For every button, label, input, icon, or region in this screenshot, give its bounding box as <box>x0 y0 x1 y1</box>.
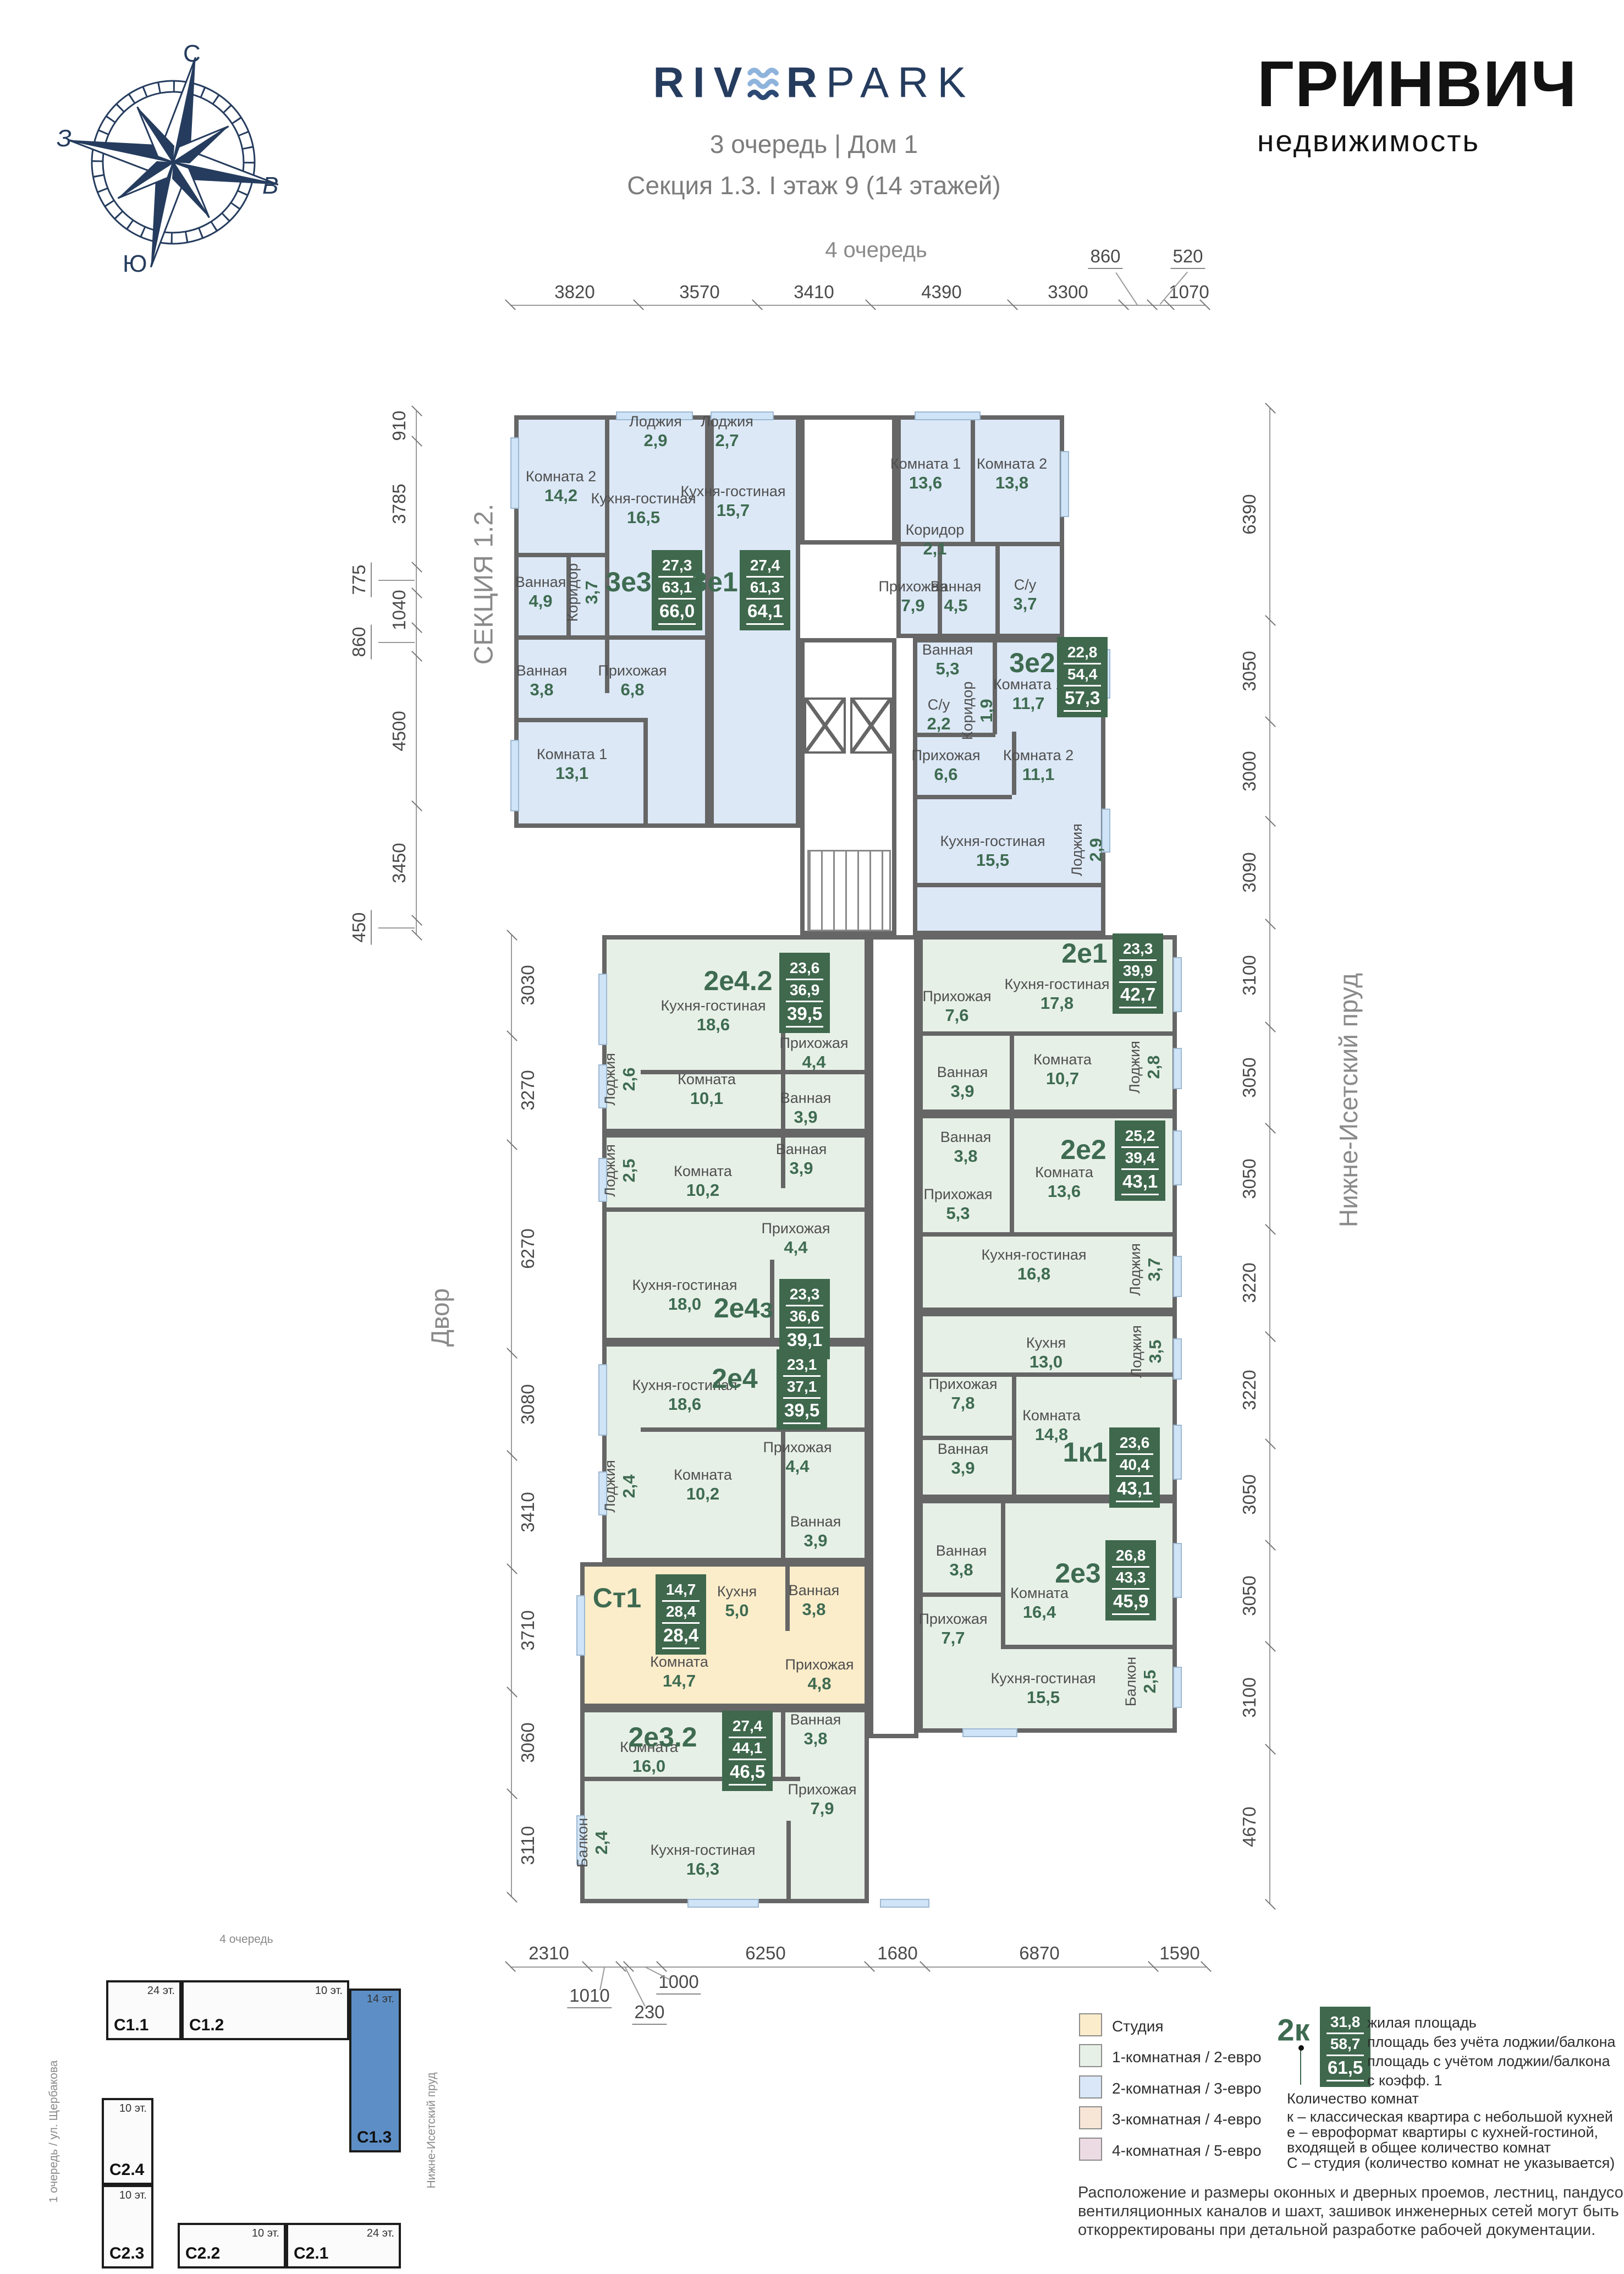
room-label: Прихожая6,8 <box>598 662 667 700</box>
room-area-value: 2,5 <box>1139 1657 1160 1707</box>
legend-label: 3-комнатная / 4-евро <box>1112 2111 1262 2128</box>
window <box>1173 1130 1182 1185</box>
legend-label: 1-комнатная / 2-евро <box>1112 2048 1262 2066</box>
badge-area-value: 40,4 <box>1116 1455 1153 1477</box>
room-label: Лоджия2,9 <box>629 413 682 451</box>
legend-label: 4-комнатная / 5-евро <box>1112 2142 1262 2160</box>
room-name: Кухня <box>717 1583 757 1600</box>
room-name: Комната <box>674 1466 732 1484</box>
room-name: Прихожая <box>911 747 980 764</box>
key-leader-dot <box>1298 2045 1304 2051</box>
area-badge: 23,640,443,1 <box>1109 1427 1160 1508</box>
room-label: Комната10,7 <box>1033 1051 1092 1089</box>
room-name: Лоджия <box>701 413 753 430</box>
badge-area-value: 27,4 <box>746 556 784 578</box>
room-area-value: 2,7 <box>701 430 753 451</box>
window <box>510 740 519 811</box>
building-name: С1.2 <box>189 2016 224 2035</box>
room-area-value: 3,9 <box>776 1158 827 1178</box>
dimension-label: 3080 <box>518 1384 538 1424</box>
room-area-value: 3,8 <box>789 1599 839 1619</box>
room-area-value: 3,9 <box>780 1107 831 1127</box>
room-label: Ванная3,8 <box>936 1542 987 1580</box>
room-name: Прихожая <box>761 1220 830 1237</box>
building-name: С2.2 <box>185 2244 220 2263</box>
badge-area-value: 66,0 <box>658 600 696 625</box>
dimension-label: 1590 <box>1159 1943 1199 1964</box>
key-explain-text: входящей в общее количество комнат <box>1287 2139 1551 2156</box>
siteplan-building-С2.2: С2.210 эт. <box>178 2223 286 2268</box>
room-label: Прихожая6,6 <box>911 747 980 784</box>
room-label: Лоджия2,7 <box>701 413 753 451</box>
badge-area-value: 57,3 <box>1064 686 1101 712</box>
wall <box>643 718 648 828</box>
room-label: Кухня-гостиная15,5 <box>990 1670 1095 1707</box>
wall <box>918 1592 1001 1597</box>
key-leader-line <box>1300 2047 1301 2085</box>
leader-line <box>378 642 415 643</box>
room-name: Кухня-гостиная <box>1004 976 1109 993</box>
room-label: Кухня-гостиная16,8 <box>981 1246 1086 1284</box>
dimension-label: 3785 <box>389 484 410 524</box>
wall <box>514 635 709 640</box>
room-label: Ванная3,8 <box>516 662 567 700</box>
legend-swatch <box>1079 2013 1102 2036</box>
window <box>1173 1256 1182 1297</box>
wall <box>1012 1372 1016 1499</box>
room-label: Ванная4,5 <box>931 578 981 616</box>
room-label: Кухня-гостиная15,7 <box>680 483 785 520</box>
room-label: Лоджия2,4 <box>602 1460 639 1513</box>
dimension-label: 3820 <box>554 282 594 303</box>
window <box>687 1899 759 1908</box>
room-area-value: 5,0 <box>717 1600 757 1621</box>
siteplan-pond-label: Нижне-Исетский пруд <box>425 2072 438 2188</box>
dimension-label: 1010 <box>567 1985 612 2008</box>
room-area-value: 3,8 <box>516 679 567 700</box>
wall <box>781 1708 785 1777</box>
wall <box>995 545 1000 638</box>
badge-area-value: 36,6 <box>786 1306 823 1328</box>
dimension-label: 1070 <box>1169 282 1209 303</box>
room-name: Ванная <box>515 574 566 591</box>
apartment-type-label: 2е1 <box>1061 937 1107 969</box>
room-area-value: 16,8 <box>981 1264 1086 1284</box>
room-area-value: 4,4 <box>779 1052 848 1072</box>
badge-area-value: 58,7 <box>1326 2034 1364 2056</box>
dimension-chain-line <box>510 1967 1206 1968</box>
room-label: Ванная3,9 <box>790 1513 841 1551</box>
room-area-value: 2,9 <box>629 430 682 451</box>
badge-area-value: 46,5 <box>729 1760 766 1786</box>
room-name: Коридор <box>564 563 581 622</box>
room-area-value: 11,7 <box>993 693 1064 713</box>
corridor <box>869 935 918 1738</box>
room-name: Ванная <box>789 1582 839 1599</box>
room-label: Ванная3,8 <box>790 1711 841 1749</box>
legend-swatch <box>1079 2106 1102 2129</box>
room-label: Ванная4,9 <box>515 574 566 611</box>
room-area-value: 15,7 <box>680 500 785 520</box>
window <box>598 974 607 1045</box>
area-badge: 27,461,364,1 <box>740 550 790 630</box>
room-name: Лоджия <box>1126 1041 1143 1094</box>
siteplan-building-С2.1: С2.124 эт. <box>286 2223 401 2268</box>
legend-swatch <box>1079 2138 1102 2161</box>
wall <box>1001 1645 1177 1649</box>
leader-line <box>378 927 415 929</box>
room-name: Кухня-гостиная <box>940 833 1045 850</box>
room-label: Комната13,6 <box>1035 1164 1093 1201</box>
room-area-value: 5,3 <box>923 1203 992 1223</box>
dimension-label: 2310 <box>529 1943 569 1964</box>
room-area-value: 6,6 <box>911 764 980 784</box>
leader-line <box>625 1967 646 2007</box>
room-area-value: 4,9 <box>515 591 566 611</box>
room-area-value: 3,5 <box>1145 1325 1165 1378</box>
room-label: Лоджия2,5 <box>602 1144 639 1197</box>
badge-area-value: 36,9 <box>786 980 823 1002</box>
building-floors: 10 эт. <box>119 2102 147 2115</box>
room-name: Прихожая <box>923 1186 992 1203</box>
window <box>1173 1338 1182 1380</box>
room-name: Кухня-гостиная <box>981 1246 1086 1264</box>
badge-area-value: 31,8 <box>1326 2012 1364 2034</box>
room-name: Лоджия <box>602 1144 619 1197</box>
room-label: Ванная3,9 <box>938 1441 988 1478</box>
room-label: Комната10,2 <box>674 1466 732 1504</box>
room-name: Кухня <box>1026 1334 1066 1352</box>
room-area-value: 18,6 <box>632 1394 737 1414</box>
dimension-label: 3100 <box>1239 955 1260 995</box>
room-name: Кухня-гостиная <box>632 1277 737 1294</box>
dimension-label: 3100 <box>1239 1677 1260 1717</box>
dimension-label: 860 <box>1088 246 1122 269</box>
room-area-value: 6,8 <box>598 679 667 700</box>
room-name: Комната 2 <box>977 455 1047 473</box>
badge-area-value: 22,8 <box>1064 642 1101 664</box>
room-area-value: 3,7 <box>1013 594 1037 614</box>
badge-area-value: 23,1 <box>783 1355 821 1377</box>
badge-area-value: 39,5 <box>783 1399 821 1424</box>
room-name: Комната <box>1035 1164 1093 1181</box>
room-name: Кухня-гостиная <box>680 483 785 500</box>
building-name: С1.3 <box>357 2128 392 2147</box>
badge-area-value: 63,1 <box>658 578 696 600</box>
room-label: Комната 111,7 <box>993 676 1064 713</box>
room-label: С/у2,2 <box>927 696 950 734</box>
key-side-text: площадь с учётом лоджии/балкона <box>1367 2053 1610 2070</box>
room-label: Прихожая4,4 <box>763 1439 832 1476</box>
window <box>576 1595 585 1656</box>
apartment-type-label: 2е3.2 <box>628 1721 697 1753</box>
room-name: Ванная <box>776 1141 827 1158</box>
room-name: Ванная <box>790 1513 841 1530</box>
room-name: Лоджия <box>602 1053 619 1106</box>
room-name: Комната 2 <box>1003 747 1074 764</box>
badge-area-value: 39,9 <box>1119 961 1157 983</box>
dimension-label: 1680 <box>877 1943 917 1964</box>
floor-plan-page: С З В Ю RIV R PARK 3 очередь | Дом 1 Сек… <box>0 0 1624 2274</box>
badge-area-value: 23,6 <box>1116 1433 1153 1455</box>
stairs-icon <box>807 850 891 931</box>
room-name: Лоджия <box>629 413 682 430</box>
badge-area-value: 27,3 <box>658 556 696 578</box>
room-label: Лоджия2,9 <box>1069 823 1106 876</box>
room-label: Лоджия3,7 <box>1127 1243 1164 1296</box>
room-area-value: 11,1 <box>1003 764 1074 784</box>
area-badge: 14,728,428,4 <box>656 1574 706 1655</box>
window <box>915 411 981 420</box>
dimension-label: 3220 <box>1239 1262 1260 1303</box>
window <box>598 1364 607 1436</box>
room-label: Прихожая4,4 <box>779 1035 848 1072</box>
room-area-value: 3,7 <box>1144 1243 1164 1296</box>
room-name: Прихожая <box>928 1376 997 1393</box>
wall <box>786 1821 791 1903</box>
room-label: Кухня-гостиная17,8 <box>1004 976 1109 1013</box>
room-label: Кухня5,0 <box>717 1583 757 1621</box>
area-badge: 23,336,639,1 <box>779 1279 830 1359</box>
room-name: С/у <box>927 696 950 713</box>
room-name: Коридор <box>959 682 976 740</box>
room-name: Лоджия <box>1127 1243 1144 1296</box>
room-area-value: 17,8 <box>1004 993 1109 1013</box>
room-label: Прихожая4,8 <box>785 1656 854 1694</box>
key-explain-text: Количество комнат <box>1287 2090 1419 2107</box>
dimension-chain-line <box>510 305 1205 306</box>
badge-area-value: 43,1 <box>1116 1477 1153 1502</box>
siteplan-building-С1.3: С1.314 эт. <box>349 1989 401 2152</box>
badge-area-value: 27,4 <box>729 1716 766 1738</box>
room-label: Коридор1,9 <box>959 682 997 740</box>
wall <box>602 1207 869 1212</box>
dimension-label: 3110 <box>518 1826 538 1865</box>
dimension-label: 6250 <box>745 1943 785 1964</box>
room-label: Прихожая7,6 <box>922 988 991 1025</box>
badge-area-value: 28,4 <box>662 1624 700 1649</box>
apartment-type-label: 3е1 <box>692 566 737 598</box>
badge-area-value: 42,7 <box>1119 983 1157 1008</box>
dimension-label: 450 <box>349 910 372 944</box>
room-name: Комната <box>1033 1051 1092 1068</box>
room-label: Прихожая7,7 <box>918 1611 987 1648</box>
room-name: Ванная <box>790 1711 841 1728</box>
building-floors: 14 эт. <box>367 1993 394 2006</box>
room-area-value: 2,4 <box>619 1460 639 1513</box>
badge-area-value: 25,2 <box>1121 1126 1159 1148</box>
room-area-value: 18,6 <box>660 1014 766 1035</box>
badge-area-value: 14,7 <box>662 1580 700 1602</box>
room-name: Ванная <box>936 1542 987 1559</box>
room-name: Комната <box>650 1654 708 1671</box>
wall <box>1010 1031 1014 1114</box>
badge-area-value: 39,5 <box>786 1002 823 1028</box>
room-name: Ванная <box>937 1064 988 1081</box>
building-floors: 10 эт. <box>315 1985 343 1997</box>
area-badge: 23,137,139,5 <box>777 1349 827 1430</box>
room-name: Ванная <box>516 662 567 679</box>
legend-swatch <box>1079 2044 1102 2067</box>
key-side-text: с коэфф. 1 <box>1367 2072 1442 2089</box>
room-area-value: 13,8 <box>977 473 1047 493</box>
room-area-value: 2,5 <box>619 1144 639 1197</box>
dimension-label: 3050 <box>1239 1158 1260 1199</box>
dimension-label: 860 <box>349 624 372 659</box>
dimension-label: 3410 <box>518 1492 538 1532</box>
room-area-value: 10,7 <box>1033 1068 1092 1089</box>
building-floors: 24 эт. <box>367 2227 394 2240</box>
room-name: Ванная <box>940 1129 991 1146</box>
building-floors: 10 эт. <box>252 2227 279 2240</box>
room-label: Коридор3,7 <box>564 563 602 622</box>
siteplan-building-С2.3: С2.310 эт. <box>102 2185 153 2268</box>
siteplan-building-С1.2: С1.210 эт. <box>181 1980 349 2040</box>
room-area-value: 15,5 <box>990 1687 1095 1707</box>
area-badge: 23,636,939,5 <box>779 953 830 1033</box>
badge-area-value: 23,6 <box>786 958 823 980</box>
legend-swatch <box>1079 2075 1102 2099</box>
room-area-value: 3,8 <box>790 1728 841 1749</box>
dimension-label: 520 <box>1170 246 1205 269</box>
room-label: Кухня-гостиная16,3 <box>650 1842 755 1879</box>
key-symbol: 2к <box>1277 2012 1309 2048</box>
room-area-value: 2,1 <box>906 539 965 559</box>
room-label: Прихожая4,4 <box>761 1220 830 1257</box>
room-label: Комната 214,2 <box>526 468 596 506</box>
window <box>962 1728 1017 1737</box>
dimension-label: 910 <box>389 410 410 441</box>
room-name: Балкон <box>1122 1657 1139 1707</box>
room-label: Комната16,4 <box>1010 1585 1069 1622</box>
dimension-label: 1000 <box>656 1971 701 1995</box>
dimension-label: 230 <box>632 2002 667 2025</box>
dimension-label: 3090 <box>1239 852 1260 892</box>
room-name: Прихожая <box>922 988 991 1005</box>
room-name: Лоджия <box>1069 823 1086 876</box>
room-name: Кухня-гостиная <box>990 1670 1095 1687</box>
wall <box>514 718 646 722</box>
dimension-label: 3050 <box>1239 651 1260 691</box>
dimension-label: 3050 <box>1239 1575 1260 1616</box>
dimension-chain-line <box>1269 408 1270 1904</box>
room-area-value: 14,2 <box>526 485 596 506</box>
room-name: Лоджия <box>602 1460 619 1513</box>
room-area-value: 16,3 <box>650 1859 755 1879</box>
badge-area-value: 37,1 <box>783 1377 821 1399</box>
room-area-value: 7,6 <box>922 1005 991 1025</box>
room-label: Ванная3,9 <box>776 1141 827 1178</box>
dimension-label: 3220 <box>1239 1370 1260 1410</box>
apartment-type-label: 2е3 <box>1055 1557 1100 1589</box>
area-badge: 27,444,146,5 <box>722 1711 773 1791</box>
dimension-label: 3270 <box>518 1070 538 1110</box>
room-area-value: 3,8 <box>940 1146 991 1166</box>
building-floors: 10 эт. <box>119 2189 147 2202</box>
room-area-value: 4,4 <box>763 1456 832 1476</box>
wall <box>514 553 605 557</box>
wall <box>918 1436 1012 1440</box>
room-label: Ванная3,9 <box>937 1064 988 1101</box>
dimension-label: 3410 <box>794 282 834 303</box>
room-name: Прихожая <box>918 1611 987 1628</box>
room-label: Комната10,1 <box>678 1071 736 1108</box>
room-label: Комната14,7 <box>650 1654 708 1691</box>
room-name: Балкон <box>574 1818 591 1868</box>
key-explain-text: С – студия (количество комнат не указыва… <box>1287 2155 1615 2172</box>
apartment-type-label: 3е2 <box>1009 647 1055 679</box>
room-area-value: 10,2 <box>674 1484 732 1504</box>
room-label: Кухня13,0 <box>1026 1334 1066 1372</box>
room-name: Ванная <box>922 641 973 658</box>
room-label: Комната 211,1 <box>1003 747 1074 784</box>
siteplan-street-label: 1 очередь / ул. Щербакова <box>47 2061 60 2203</box>
room-name: Комната <box>674 1163 732 1180</box>
room-label: Лоджия3,5 <box>1128 1325 1165 1378</box>
room-area-value: 13,6 <box>1035 1181 1093 1201</box>
room-label: Ванная3,8 <box>789 1582 839 1619</box>
room-area-value: 3,9 <box>938 1458 988 1478</box>
room-label: С/у3,7 <box>1013 576 1037 614</box>
room-name: Ванная <box>931 578 981 595</box>
dimension-label: 3450 <box>389 843 410 883</box>
window <box>1173 957 1182 1012</box>
room-label: Ванная3,9 <box>780 1090 831 1127</box>
badge-area-value: 64,1 <box>746 600 784 625</box>
dimension-chain-line <box>511 935 512 1897</box>
room-name: Комната 2 <box>526 468 596 485</box>
wall <box>605 415 609 693</box>
dimension-chain-line <box>416 411 417 935</box>
dimension-label: 4500 <box>389 711 410 751</box>
room-area-value: 2,2 <box>927 713 950 734</box>
room-area-value: 4,4 <box>761 1237 830 1257</box>
badge-area-value: 23,3 <box>786 1284 823 1306</box>
badge-area-value: 39,4 <box>1121 1148 1159 1170</box>
room-area-value: 13,0 <box>1026 1352 1066 1372</box>
wall <box>913 795 1012 799</box>
siteplan-building-С1.1: С1.124 эт. <box>106 1980 181 2040</box>
wall <box>1001 1499 1005 1647</box>
stair-recess <box>800 415 896 545</box>
dimension-label: 6390 <box>1239 494 1260 534</box>
room-name: Комната <box>1022 1407 1081 1424</box>
room-name: Ванная <box>938 1441 988 1458</box>
building-name: С2.3 <box>109 2244 144 2263</box>
window <box>1173 1543 1182 1598</box>
wall <box>918 1232 1177 1237</box>
badge-area-value: 26,8 <box>1112 1546 1149 1568</box>
room-name: Комната 1 <box>537 746 607 763</box>
window <box>880 1899 929 1908</box>
plan-canvas: Лоджия2,9Комната 214,2Кухня-гостиная16,5… <box>0 0 1624 2274</box>
badge-area-value: 28,4 <box>662 1602 700 1624</box>
elevator-shaft-icon <box>804 697 846 754</box>
room-label: Комната10,2 <box>674 1163 732 1200</box>
apartment-type-label: 3е3 <box>605 566 651 598</box>
room-label: Лоджия2,6 <box>602 1053 639 1106</box>
dimension-label: 3570 <box>679 282 719 303</box>
dimension-label: 3050 <box>1239 1057 1260 1097</box>
room-area-value: 16,0 <box>620 1756 678 1776</box>
apartment-type-label: 1к1 <box>1063 1436 1108 1468</box>
room-name: Прихожая <box>779 1035 848 1052</box>
room-area-value: 7,8 <box>928 1393 997 1413</box>
apartment-type-label: 2е4з <box>714 1292 773 1324</box>
room-area-value: 3,9 <box>937 1081 988 1101</box>
room-name: Коридор <box>906 521 965 539</box>
area-badge: 26,843,345,9 <box>1105 1540 1156 1621</box>
